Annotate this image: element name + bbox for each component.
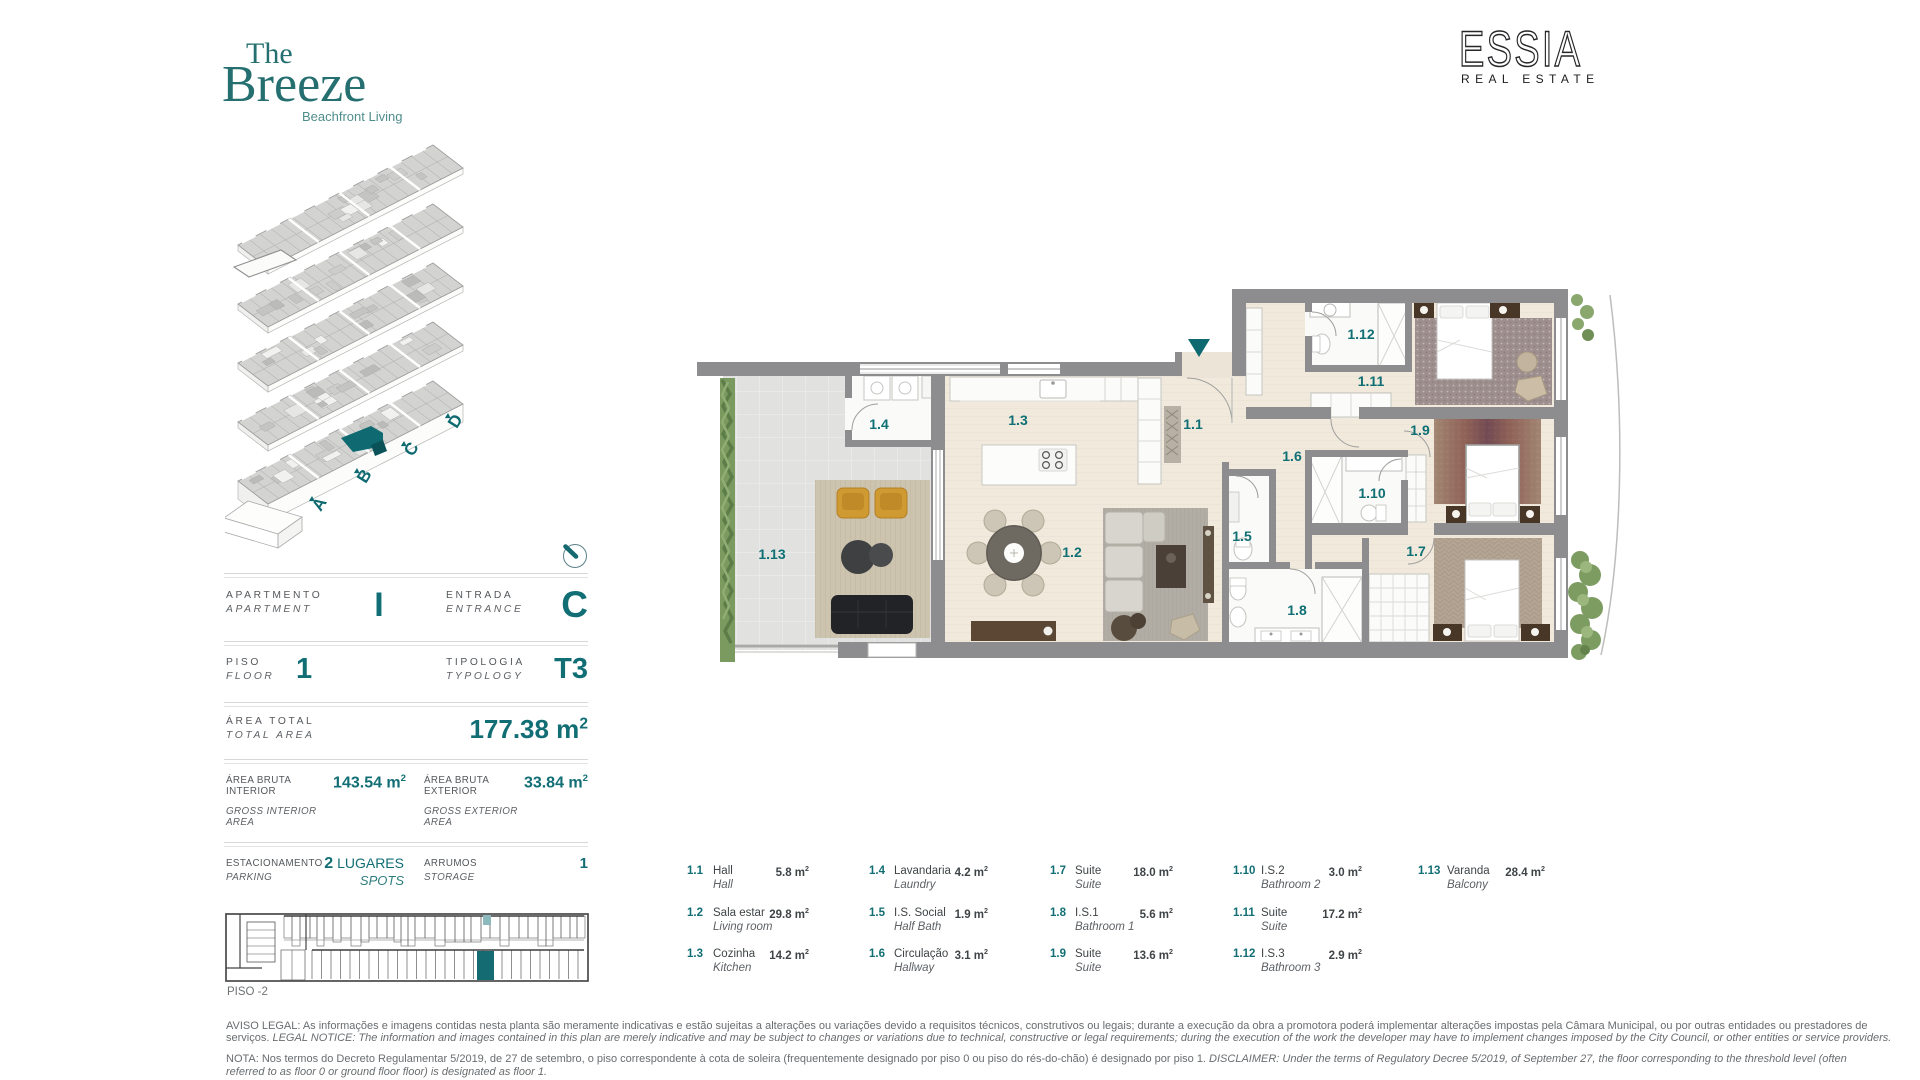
svg-text:1.3: 1.3 — [1008, 412, 1028, 428]
svg-text:1.9: 1.9 — [1410, 422, 1430, 438]
svg-text:1.13: 1.13 — [758, 546, 785, 562]
svg-text:1.10: 1.10 — [1358, 485, 1385, 501]
svg-text:ESSIA: ESSIA — [1459, 22, 1582, 72]
svg-text:1.7: 1.7 — [1406, 543, 1426, 559]
svg-text:1.6: 1.6 — [1282, 448, 1302, 464]
svg-text:1.1: 1.1 — [1183, 416, 1203, 432]
svg-text:1.8: 1.8 — [1287, 602, 1307, 618]
svg-text:1.4: 1.4 — [869, 416, 889, 432]
svg-text:1.2: 1.2 — [1062, 544, 1082, 560]
svg-text:1.5: 1.5 — [1232, 528, 1252, 544]
svg-text:1.12: 1.12 — [1347, 326, 1374, 342]
svg-text:1.11: 1.11 — [1358, 373, 1385, 389]
